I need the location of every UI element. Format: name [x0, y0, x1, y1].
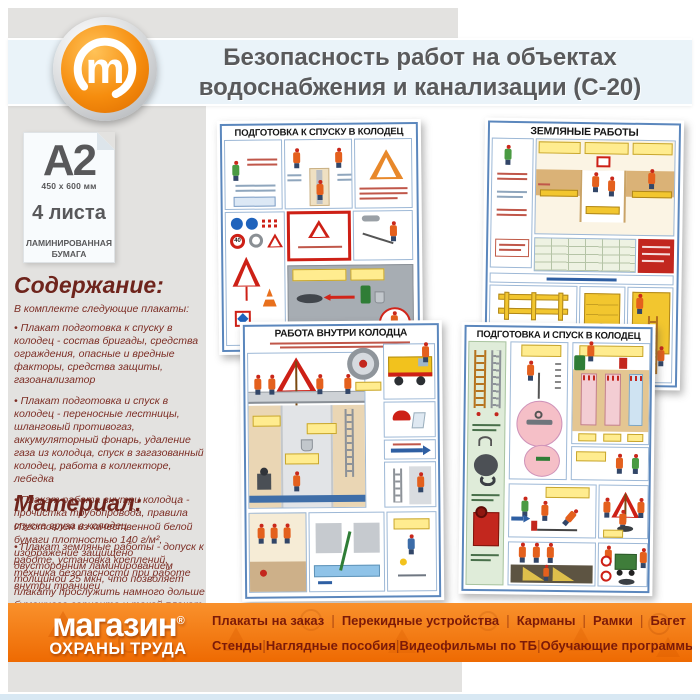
contents-item: Плакат подготовка к спуску в колодец - с…	[14, 322, 206, 387]
footer-menu-item[interactable]: Плакаты на заказ	[212, 613, 324, 628]
battery-lamp-icon	[473, 512, 499, 546]
art-shape	[642, 246, 670, 248]
brand-logo-icon: m	[53, 17, 157, 121]
art-shape	[362, 233, 393, 244]
art-shape: магазин	[52, 606, 176, 643]
valve-icon	[257, 474, 271, 490]
art-shape	[394, 376, 403, 385]
art-shape	[571, 446, 649, 481]
poster-thumb-rabota-vnutri-kolodca[interactable]: РАБОТА ВНУТРИ КОЛОДЦА	[240, 320, 444, 602]
art-shape	[499, 244, 525, 246]
lantern-icon	[400, 558, 407, 565]
art-shape	[521, 345, 561, 357]
art-shape	[293, 475, 300, 486]
dimensions-label: 450 x 600 мм	[24, 181, 114, 191]
art-shape	[507, 541, 596, 586]
art-shape	[533, 547, 540, 558]
art-shape	[329, 296, 355, 299]
art-shape	[471, 554, 499, 556]
art-shape	[633, 143, 673, 156]
speed-limit-sign: 40	[230, 234, 245, 249]
art-shape	[350, 268, 384, 280]
contents-item: Плакат подготовка и спуск в колодец - пе…	[14, 395, 206, 486]
art-shape	[422, 346, 429, 357]
art-shape	[531, 292, 536, 320]
art-shape	[632, 458, 639, 469]
art-shape	[417, 476, 424, 487]
art-shape	[394, 518, 430, 529]
art-shape	[619, 514, 626, 525]
art-shape	[540, 189, 578, 197]
art-shape	[537, 529, 577, 531]
art-shape	[536, 457, 550, 461]
gas-mask-icon	[474, 454, 498, 476]
art-shape	[629, 570, 635, 576]
art-shape	[386, 511, 437, 591]
hook-icon	[478, 436, 492, 446]
art-shape	[253, 416, 281, 427]
page-title-line1: Безопасность работ на объектах	[150, 43, 690, 73]
art-shape	[509, 341, 569, 480]
art-shape	[642, 260, 664, 262]
art-shape	[344, 378, 351, 389]
art-shape	[360, 197, 398, 199]
art-shape	[224, 139, 283, 210]
art-shape	[497, 178, 527, 180]
art-shape: m	[85, 44, 124, 93]
footer-menu-item[interactable]: Обучающие программы	[541, 638, 692, 653]
menu-separator: |	[396, 637, 400, 653]
art-shape	[285, 453, 319, 464]
helmet-icon	[393, 410, 411, 420]
art-shape	[248, 512, 307, 593]
art-shape	[642, 253, 670, 255]
channel-panel	[308, 512, 385, 593]
winch-machine-icon	[615, 554, 637, 570]
ladder-icon	[345, 409, 355, 477]
art-shape	[337, 179, 351, 181]
footer-menu-item[interactable]: Стенды	[212, 638, 262, 653]
art-shape	[471, 559, 491, 561]
art-shape	[293, 152, 300, 163]
art-shape: ПОДГОТОВКА И СПУСК В КОЛОДЕЦ	[461, 325, 652, 593]
manhole-cover-icon	[618, 579, 634, 585]
pump-icon	[361, 285, 371, 303]
footer-menu-item[interactable]: Карманы	[517, 613, 576, 628]
art-shape	[388, 372, 432, 376]
footer-menu-item[interactable]: Видеофильмы по ТБ	[399, 638, 536, 653]
art-shape	[603, 502, 610, 513]
art-shape	[543, 568, 549, 577]
art-shape	[527, 365, 534, 376]
art-shape	[324, 294, 331, 301]
gas-removal-panel	[571, 342, 650, 445]
art-shape	[398, 574, 426, 576]
art-shape	[648, 173, 655, 184]
bucket-icon	[301, 439, 313, 451]
art-shape	[587, 345, 594, 356]
format-card: A2 450 x 600 мм 4 листа ЛАМИНИРОВАННАЯ Б…	[23, 132, 115, 263]
equipment-column	[465, 341, 506, 585]
truck-panel	[383, 343, 435, 399]
art-shape	[538, 183, 550, 185]
prohibition-sign-icon	[249, 234, 263, 248]
poster-title: ПОДГОТОВКА К СПУСКУ В КОЛОДЕЦ	[224, 126, 414, 139]
art-shape	[262, 224, 280, 227]
art-shape	[472, 494, 500, 496]
art-shape	[495, 412, 499, 416]
manhole-cover-icon	[297, 294, 323, 303]
art-shape	[307, 423, 337, 434]
art-shape	[508, 483, 597, 538]
art-shape	[616, 458, 623, 469]
art-shape	[360, 192, 408, 195]
art-shape	[390, 225, 397, 236]
art-shape	[246, 287, 248, 301]
road-sign-icon	[231, 218, 243, 230]
art-shape	[359, 187, 407, 190]
art-shape	[497, 196, 523, 198]
poster-title: ПОДГОТОВКА И СПУСК В КОЛОДЕЦ	[468, 329, 648, 342]
art-shape	[260, 570, 267, 577]
menu-separator: |	[262, 637, 266, 653]
art-shape	[477, 412, 481, 416]
water-channel-icon	[314, 565, 380, 578]
art-shape	[497, 173, 527, 175]
tool-badge	[601, 556, 612, 567]
art-shape	[480, 474, 496, 486]
art-shape	[353, 210, 414, 261]
poster-title: РАБОТА ВНУТРИ КОЛОДЦА	[247, 327, 435, 340]
face-shield-icon	[412, 412, 426, 428]
road-sign-icon	[246, 218, 258, 230]
background-gray-bottom	[8, 662, 462, 692]
art-shape	[292, 269, 346, 282]
art-shape	[354, 523, 380, 553]
registered-mark: ®	[177, 615, 184, 627]
art-shape: БУМАГА	[24, 249, 114, 260]
art-shape	[423, 445, 431, 455]
art-shape	[627, 434, 643, 442]
art-shape	[284, 527, 291, 538]
art-shape	[604, 374, 621, 426]
art-shape	[636, 298, 643, 309]
art-shape	[271, 528, 278, 539]
art-shape	[254, 379, 261, 390]
art-shape	[391, 448, 423, 452]
warning-placard	[287, 211, 352, 262]
ladder-icon	[474, 350, 487, 408]
art-shape	[632, 191, 672, 199]
art-shape: РАБОТА ВНУТРИ КОЛОДЦА	[243, 323, 441, 599]
art-shape	[335, 152, 342, 163]
art-shape	[260, 468, 268, 476]
paper-type: ЛАМИНИРОВАННАЯ БУМАГА	[24, 238, 114, 260]
page-title-line2: водоснабжения и канализации (С-20)	[150, 73, 690, 103]
art-shape	[236, 189, 276, 191]
art-shape	[657, 350, 664, 361]
art-shape	[408, 538, 415, 549]
danger-sign-icon	[596, 156, 610, 167]
art-shape	[318, 581, 332, 584]
art-shape	[546, 487, 590, 499]
helmet-panel	[383, 401, 435, 437]
art-shape	[362, 215, 380, 221]
art-shape	[235, 184, 275, 186]
art-shape	[495, 239, 529, 258]
poster-thumb-podgotovka-i-spusk[interactable]: ПОДГОТОВКА И СПУСК В КОЛОДЕЦ	[458, 322, 655, 596]
art-shape	[265, 296, 275, 299]
art-shape	[607, 376, 619, 381]
footer-logo-line2: ОХРАНЫ ТРУДА	[20, 641, 216, 657]
art-shape	[316, 378, 323, 389]
art-shape	[580, 373, 597, 425]
art-shape	[384, 461, 436, 507]
pipe-icon	[249, 495, 365, 503]
art-shape	[247, 163, 277, 165]
art-shape	[628, 374, 643, 426]
warning-note	[638, 239, 675, 274]
art-shape	[586, 206, 620, 215]
well-scene	[247, 352, 366, 509]
art-shape	[354, 138, 413, 209]
art-shape	[497, 209, 527, 211]
page-title: Безопасность работ на объектах водоснабж…	[150, 43, 690, 103]
contents-heading: Содержание:	[14, 272, 206, 299]
art-shape	[287, 174, 301, 176]
art-shape	[534, 411, 542, 419]
art-shape	[316, 523, 342, 553]
ladder-icon	[393, 468, 402, 502]
hydrant-icon	[619, 358, 627, 369]
art-shape	[592, 176, 599, 187]
art-shape	[538, 373, 540, 399]
art-shape	[472, 424, 500, 426]
footer-menu-row-2: Стенды|Наглядные пособия|Видеофильмы по …	[206, 637, 692, 653]
art-shape	[541, 505, 548, 516]
menu-separator: |	[537, 637, 541, 653]
dimensions-table	[534, 237, 637, 273]
footer-menus: Плакаты на заказ|Перекидные устройства|К…	[206, 603, 692, 662]
art-shape	[490, 273, 674, 286]
art-shape	[258, 528, 265, 539]
art-shape	[472, 429, 496, 431]
art-shape	[234, 196, 276, 206]
art-shape	[608, 180, 615, 191]
footer-menu-item[interactable]: Рамки	[593, 613, 633, 628]
art-shape	[416, 376, 425, 385]
art-shape	[526, 420, 552, 425]
sheets-count: 4 листа	[24, 202, 114, 225]
art-shape	[471, 499, 493, 501]
art-shape	[497, 214, 527, 216]
art-shape	[511, 516, 523, 520]
bottom-edge-strip	[0, 694, 700, 700]
art-shape	[504, 292, 509, 320]
footer-bar: магазин® ОХРАНЫ ТРУДА Плакаты на заказ|П…	[8, 603, 692, 662]
art-shape	[497, 191, 527, 193]
material-heading: Материал:	[14, 490, 206, 517]
art-shape	[359, 360, 367, 368]
bucket-icon	[375, 291, 385, 303]
art-shape	[637, 502, 644, 513]
art-shape	[597, 543, 648, 588]
art-shape	[499, 249, 521, 251]
art-shape	[558, 293, 563, 321]
art-shape: ЛАМИНИРОВАННАЯ	[24, 238, 114, 249]
distance-panel	[384, 439, 436, 459]
art-shape	[539, 141, 581, 154]
art-shape	[519, 547, 526, 558]
footer-menu-item[interactable]: Багет	[650, 613, 685, 628]
footer-logo-line1: магазин®	[20, 605, 216, 641]
art-shape	[640, 552, 647, 563]
art-shape	[578, 433, 596, 441]
art-shape	[232, 165, 239, 176]
art-shape	[547, 277, 617, 281]
footer-menu-item[interactable]: Наглядные пособия	[266, 638, 396, 653]
art-shape: ПОДГОТОВКА К СПУСКУ В КОЛОДЕЦ	[220, 122, 420, 352]
art-shape	[576, 451, 606, 461]
art-shape	[547, 547, 554, 558]
art-shape	[535, 238, 635, 272]
art-shape	[580, 170, 627, 223]
footer-logo: магазин® ОХРАНЫ ТРУДА	[20, 605, 216, 661]
menu-separator: |	[331, 612, 335, 628]
art-shape	[630, 376, 642, 381]
footer-menu-row-1: Плакаты на заказ|Перекидные устройства|К…	[206, 612, 692, 628]
art-shape	[555, 363, 561, 393]
art-shape	[262, 219, 280, 222]
footer-menu-item[interactable]: Перекидные устройства	[342, 613, 499, 628]
brand-m-icon: m	[61, 25, 149, 113]
art-shape	[598, 485, 649, 540]
art-shape	[603, 530, 623, 538]
menu-separator: |	[582, 612, 586, 628]
art-shape	[504, 149, 511, 160]
menu-separator: |	[506, 612, 510, 628]
art-shape	[521, 501, 528, 512]
ladder-icon	[491, 350, 502, 408]
art-shape	[287, 179, 301, 181]
tool-badge	[601, 571, 612, 582]
contents-intro: В комплекте следующие плакаты:	[14, 303, 206, 315]
art-shape	[475, 506, 487, 518]
barrel-icon	[574, 355, 585, 370]
art-shape	[565, 510, 577, 523]
art-shape	[250, 561, 306, 591]
art-shape	[268, 379, 275, 390]
menu-separator: |	[640, 612, 644, 628]
art-shape	[585, 142, 629, 155]
art-shape	[298, 246, 342, 248]
art-shape	[490, 138, 534, 269]
art-shape	[247, 158, 277, 160]
art-shape	[355, 382, 381, 391]
trench-scene	[534, 138, 675, 236]
art-shape	[617, 570, 623, 576]
art-shape	[393, 443, 421, 445]
art-shape	[603, 434, 621, 442]
art-shape	[337, 174, 351, 176]
art-shape	[284, 139, 353, 210]
art-shape	[316, 184, 323, 195]
art-shape	[583, 375, 595, 380]
